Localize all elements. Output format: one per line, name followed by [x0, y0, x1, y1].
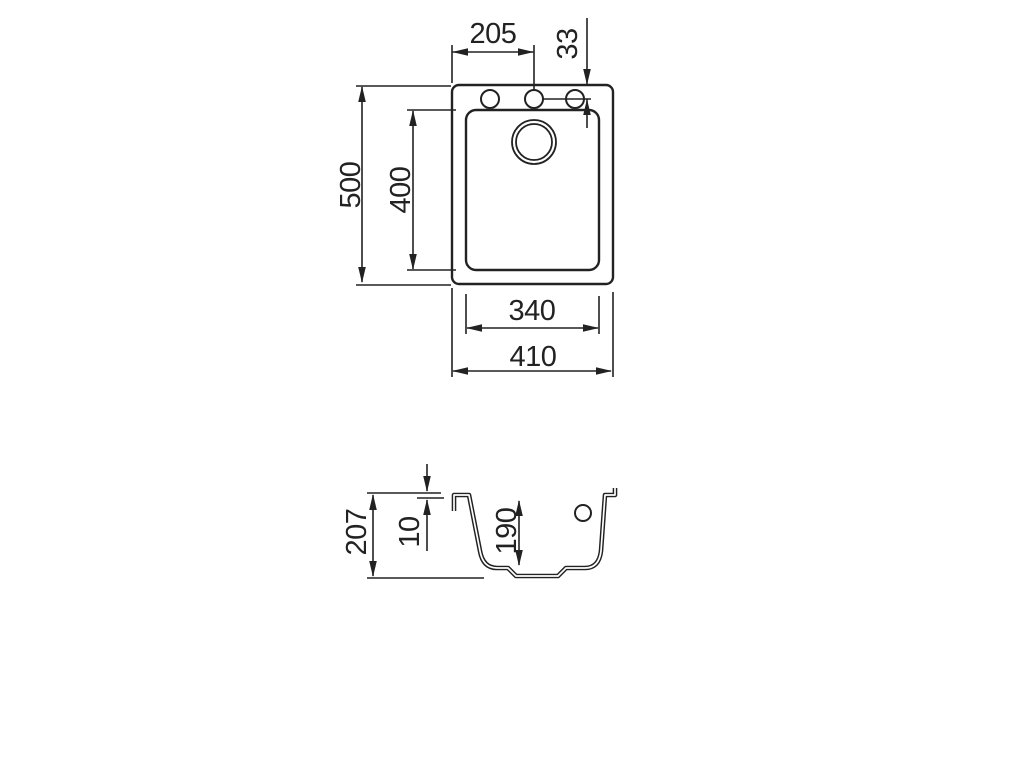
arrowhead-down — [409, 254, 417, 270]
dim-rim-height: 10 — [394, 464, 444, 551]
sink-technical-drawing: 205 33 500 400 — [0, 0, 1024, 768]
dim-hole-offset-x: 205 — [452, 18, 534, 90]
dim-inner-height: 400 — [385, 110, 456, 270]
sink-bowl-outline — [466, 110, 599, 270]
arrowhead-down — [583, 69, 591, 85]
arrowhead-right — [518, 48, 534, 56]
dim-inner-width: 340 — [466, 294, 599, 334]
arrowhead-down — [369, 561, 377, 577]
dim-label-400: 400 — [385, 167, 417, 214]
dim-label-205: 205 — [470, 18, 517, 50]
dim-label-190: 190 — [491, 508, 523, 555]
tap-hole-left — [481, 90, 499, 108]
section-view: 207 10 190 — [341, 464, 615, 578]
section-profile — [454, 488, 615, 576]
arrowhead-up — [358, 86, 366, 102]
arrowhead-left — [452, 367, 468, 375]
top-view: 205 33 500 400 — [335, 18, 613, 377]
drawing-canvas: 205 33 500 400 — [0, 0, 1024, 768]
dim-label-207: 207 — [341, 509, 373, 556]
dim-label-33: 33 — [552, 28, 584, 59]
arrowhead-left — [452, 48, 468, 56]
dim-bowl-depth: 190 — [491, 500, 523, 566]
arrowhead-right — [596, 367, 612, 375]
dim-label-340: 340 — [509, 295, 556, 327]
arrowhead-right — [583, 324, 599, 332]
arrowhead-up — [423, 499, 431, 515]
overflow-hole — [575, 505, 591, 521]
arrowhead-up — [369, 494, 377, 510]
arrowhead-left — [466, 324, 482, 332]
dim-label-410: 410 — [510, 341, 557, 373]
arrowhead-down — [423, 476, 431, 492]
arrowhead-down — [358, 267, 366, 283]
tap-hole-center — [525, 90, 543, 108]
dim-label-500: 500 — [335, 162, 367, 209]
dim-label-10: 10 — [394, 516, 426, 547]
arrowhead-up — [409, 110, 417, 126]
